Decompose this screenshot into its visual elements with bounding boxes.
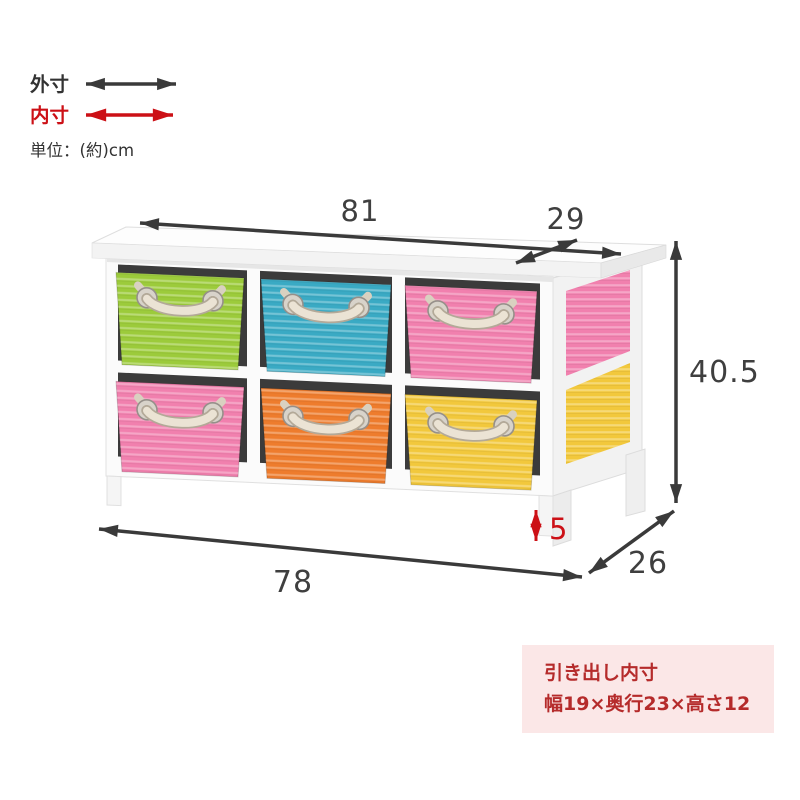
- basket-weave-texture: [405, 285, 537, 383]
- basket-top-green: [116, 272, 244, 370]
- dim-label-bottom-depth: 26: [628, 546, 668, 581]
- dim-label-height: 40.5: [689, 355, 760, 390]
- drawer-inner-dimensions-title: 引き出し内寸: [544, 658, 774, 689]
- drawer-inner-dimensions-box: 引き出し内寸 幅19×奥行23×高さ12: [522, 645, 774, 733]
- legend: 外寸 内寸 単位：(約)cm: [30, 73, 176, 160]
- legend-unit-label: 単位：(約)cm: [30, 141, 134, 160]
- dim-label-top-width: 81: [341, 194, 380, 228]
- basket-top-blue: [261, 279, 391, 377]
- basket-top-pink: [405, 285, 537, 383]
- product-dimension-diagram: 外寸 内寸 単位：(約)cm: [0, 0, 800, 800]
- basket-weave-texture: [405, 394, 537, 490]
- back-right-leg: [626, 449, 645, 516]
- storage-chest-illustration: [92, 227, 666, 546]
- dim-label-leg-height: 5: [549, 512, 568, 546]
- drawer-inner-dimensions-value: 幅19×奥行23×高さ12: [544, 689, 774, 720]
- legend-outer-label: 外寸: [30, 73, 69, 96]
- legend-inner-label: 内寸: [30, 104, 69, 127]
- cabinet-right-side: [553, 254, 645, 546]
- dim-label-bottom-width: 78: [273, 565, 313, 600]
- basket-bottom-yellow: [405, 394, 537, 490]
- cabinet-front: [106, 257, 553, 536]
- basket-bottom-orange: [261, 388, 391, 484]
- dim-label-top-depth: 29: [547, 202, 586, 236]
- front-left-leg: [107, 476, 121, 506]
- basket-bottom-pink: [116, 381, 244, 477]
- dim-arrow-bottom-width: [99, 529, 582, 577]
